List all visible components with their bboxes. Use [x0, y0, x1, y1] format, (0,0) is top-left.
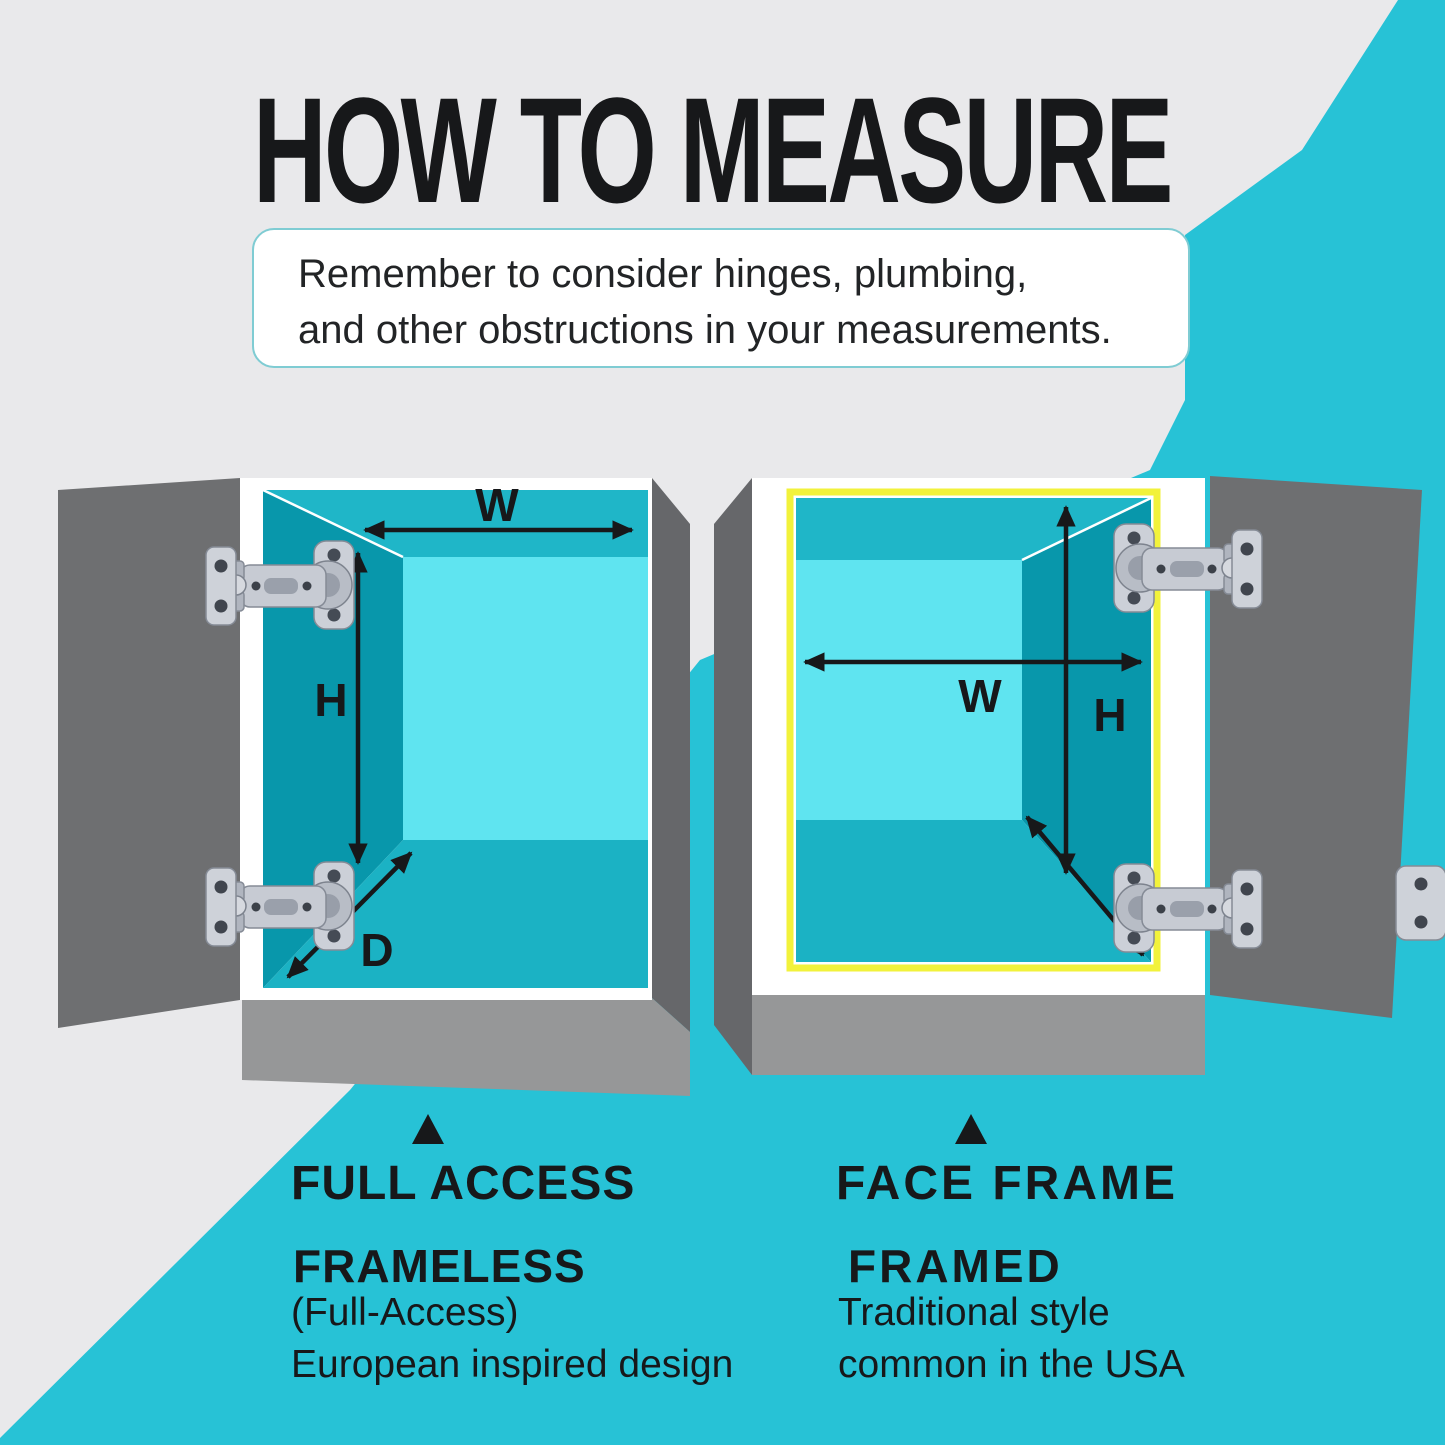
page-title: HOW TO MEASURE — [253, 64, 1171, 237]
left-style-name: FRAMELESS — [293, 1239, 586, 1293]
right-style-name: FRAMED — [848, 1239, 1063, 1293]
left-style-alt: (Full-Access) — [291, 1291, 519, 1335]
right-style-desc-1: Traditional style — [838, 1291, 1110, 1335]
left-style-desc: European inspired design — [291, 1343, 733, 1387]
right-height-label: H — [1093, 689, 1126, 741]
infographic-canvas: W H D W H D — [0, 0, 1445, 1445]
right-cabinet-side-wall — [714, 478, 752, 1075]
left-height-label: H — [314, 674, 347, 726]
note-box: Remember to consider hinges, plumbing, a… — [252, 228, 1190, 368]
note-line-1: Remember to consider hinges, plumbing, — [298, 252, 1027, 297]
left-cabinet: W H D — [58, 478, 690, 1096]
right-cabinet-base — [752, 995, 1205, 1075]
right-width-label: W — [958, 670, 1002, 722]
left-width-label: W — [475, 479, 519, 531]
left-cabinet-base — [242, 998, 690, 1096]
left-cabinet-side-wall — [652, 478, 690, 1032]
right-cabinet: W H D — [714, 476, 1445, 1075]
right-caption-title: FACE FRAME — [836, 1156, 1178, 1211]
note-line-2: and other obstructions in your measureme… — [298, 308, 1112, 353]
right-hinge-mounting-plate-icon — [1396, 866, 1445, 940]
left-interior-back-wall — [403, 557, 648, 840]
left-depth-label: D — [360, 924, 393, 976]
left-caption-title: FULL ACCESS — [291, 1156, 635, 1211]
right-style-desc-2: common in the USA — [838, 1343, 1185, 1387]
